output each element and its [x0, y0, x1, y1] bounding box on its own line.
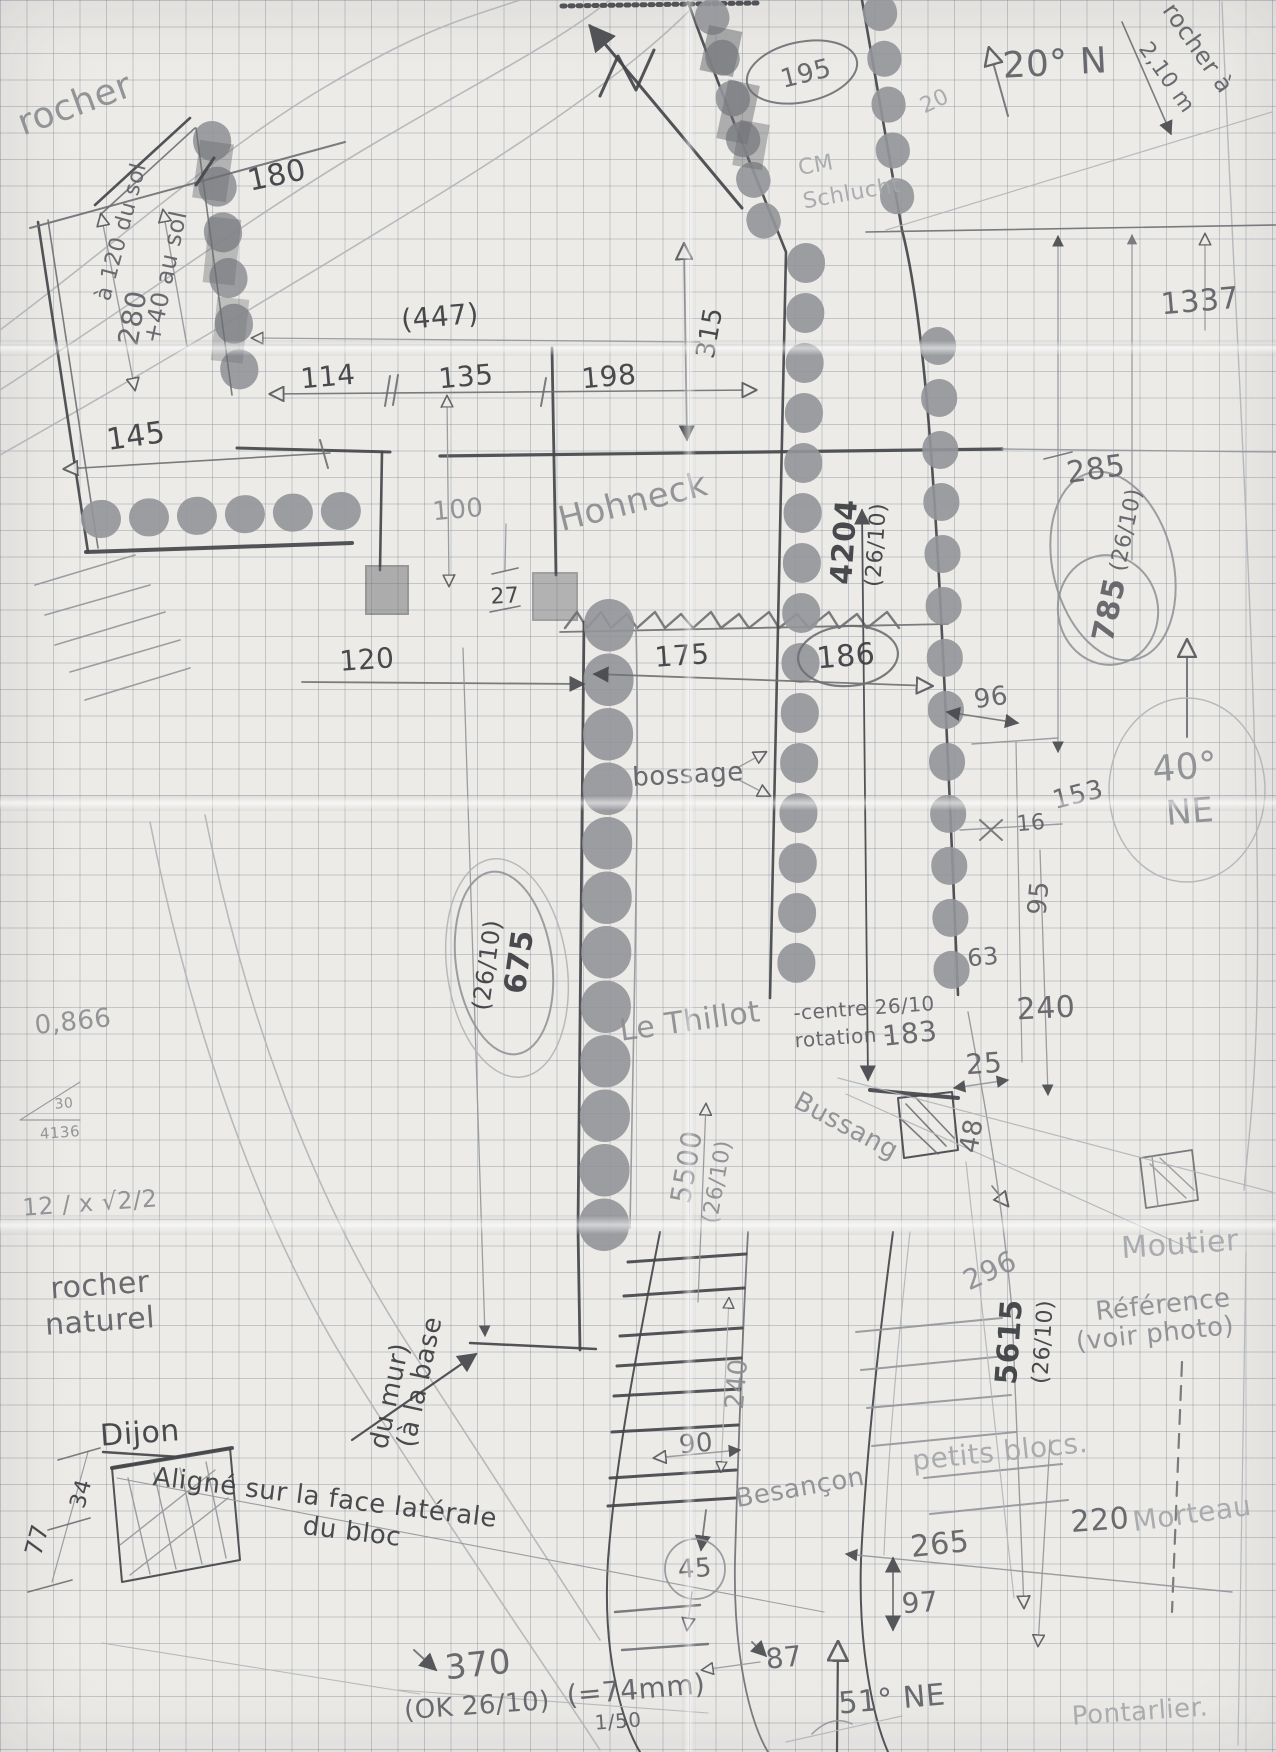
- dim-120: 120: [339, 644, 396, 676]
- num-4136: 4136: [39, 1124, 80, 1142]
- dim-145: 145: [105, 418, 167, 456]
- dim-220: 220: [1070, 1504, 1131, 1538]
- dim-63: 63: [966, 944, 1000, 971]
- dim-1337: 1337: [1160, 284, 1241, 321]
- note-a-120-du-sol: à 120 du sol: [93, 161, 151, 303]
- dim-285: 285: [1065, 451, 1127, 489]
- dim-447: (447): [400, 300, 480, 335]
- angle-40: 40°: [1151, 747, 1219, 789]
- place-hohneck: Hohneck: [555, 467, 711, 537]
- dim-240-rot: 240: [722, 1357, 752, 1410]
- dim-34: 34: [68, 1477, 97, 1511]
- angle-20-n: 20° N: [1002, 43, 1108, 84]
- dim-315: 315: [693, 306, 727, 361]
- dim-114: 114: [299, 361, 356, 394]
- dim-183: 183: [881, 1017, 939, 1051]
- note-rocher-naturel-1: rocher: [49, 1268, 150, 1305]
- dim-20-faint: 20: [917, 86, 953, 118]
- dim-195: 195: [778, 55, 834, 93]
- dim-135: 135: [437, 361, 494, 394]
- dim-175: 175: [654, 640, 711, 672]
- dim-87: 87: [764, 1642, 803, 1674]
- place-besancon: Besançon: [733, 1464, 866, 1512]
- dim-5500: 5500: [667, 1128, 707, 1205]
- place-moutier: Moutier: [1120, 1226, 1239, 1264]
- dim-25: 25: [965, 1049, 1004, 1079]
- place-bussang: Bussang: [790, 1088, 903, 1164]
- dim-90: 90: [678, 1430, 714, 1459]
- note-schlucht: Schlucht: [801, 175, 902, 214]
- note-plus-40-au-sol: +40 au sol: [139, 209, 190, 346]
- dim-265: 265: [909, 1527, 971, 1563]
- place-pontarlier: Pontarlier.: [1071, 1694, 1209, 1729]
- graph-paper-sheet: rocher180à 120 du sol280+40 au sol145(44…: [0, 0, 1276, 1752]
- dim-27: 27: [490, 585, 520, 608]
- note-petits-blocs: petits blocs.: [911, 1429, 1089, 1475]
- dim-100: 100: [431, 495, 484, 525]
- dim-96: 96: [972, 683, 1009, 713]
- dim-5615-date: (26/10): [1030, 1299, 1058, 1384]
- dim-48: 48: [956, 1117, 988, 1155]
- dim-153: 153: [1050, 776, 1106, 814]
- dim-198: 198: [580, 361, 637, 394]
- note-bossage: bossage: [632, 759, 745, 791]
- dim-186: 186: [815, 639, 876, 674]
- angle-ne: NE: [1165, 793, 1216, 831]
- place-dijon: Dijon: [99, 1416, 181, 1451]
- dim-296: 296: [959, 1247, 1021, 1296]
- note-ok-2610: (OK 26/10): [403, 1688, 550, 1724]
- dim-785: 785: [1089, 576, 1132, 645]
- dim-240: 240: [1016, 992, 1076, 1025]
- rocher-top-left: rocher: [13, 68, 137, 142]
- note-rocher-naturel-2: naturel: [44, 1303, 156, 1341]
- dim-4204: 4204: [827, 498, 863, 585]
- formula-sqrt: 12 / x √2/2: [22, 1186, 158, 1219]
- dim-370: 370: [443, 1645, 513, 1686]
- num-30: 30: [54, 1096, 74, 1112]
- note-cm: CM: [797, 152, 836, 180]
- scale-1-50: 1/50: [594, 1709, 642, 1732]
- dim-5615: 5615: [992, 1298, 1028, 1385]
- dim-97: 97: [901, 1588, 940, 1618]
- num-0-866: 0,866: [33, 1005, 112, 1039]
- angle-51-ne: 51° NE: [837, 1680, 946, 1719]
- handwritten-labels: rocher180à 120 du sol280+40 au sol145(44…: [0, 0, 1276, 1752]
- dim-180: 180: [245, 155, 309, 197]
- place-morteau: Morteau: [1131, 1492, 1253, 1536]
- dim-77: 77: [21, 1522, 52, 1559]
- dim-675-date: (26/10): [469, 918, 505, 1012]
- dim-4204-date: (26/10): [863, 502, 891, 587]
- dim-675: 675: [501, 928, 540, 996]
- dim-16: 16: [1016, 812, 1047, 836]
- dim-45: 45: [677, 1555, 713, 1583]
- note-eq-74mm: (=74mm): [566, 1670, 707, 1710]
- dim-785-date: (26/10): [1108, 487, 1147, 574]
- dim-95: 95: [1025, 880, 1054, 916]
- note-rotation: rotation -: [794, 1024, 892, 1051]
- place-le-thillot: Le Thillot: [618, 997, 762, 1046]
